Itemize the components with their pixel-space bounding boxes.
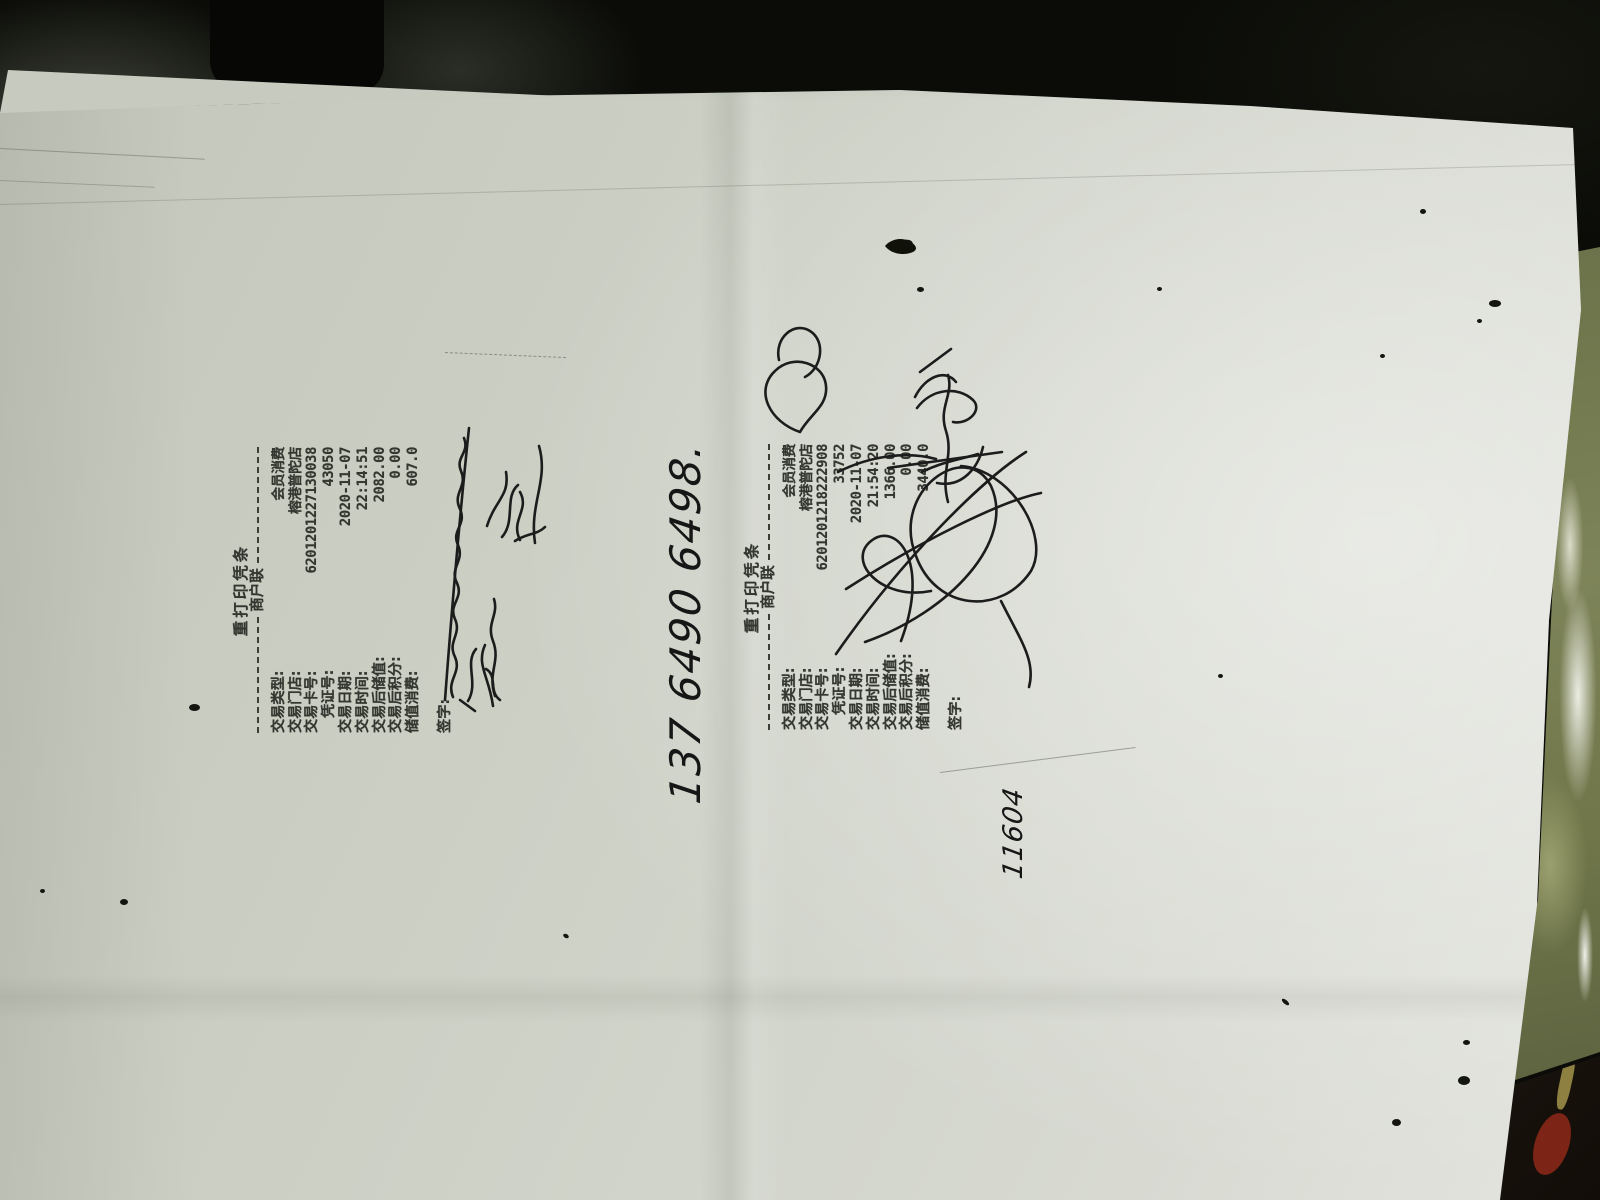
photo-of-receipts: 重打印凭条 商户联 交易类型:会员消费 交易门店:榕港普陀店 交易卡号:6201… [0,0,1600,1200]
handwritten-note-scribble [487,446,545,543]
signature-scribble [917,375,983,502]
signature-scribble [865,466,1036,642]
ink-blob [885,239,916,254]
handwriting-overlay: 137 6490 6498. 11604 [0,0,1600,1200]
handwritten-number-note: 11604 [998,785,1029,881]
loop-doodle-scribble [765,328,826,432]
signature-scribble [846,493,1041,589]
signature-scribble [1001,601,1031,687]
signature-scribble [863,536,931,641]
handwritten-note-scribble [460,599,500,711]
handwritten-phone-number: 137 6490 6498. [661,438,710,807]
